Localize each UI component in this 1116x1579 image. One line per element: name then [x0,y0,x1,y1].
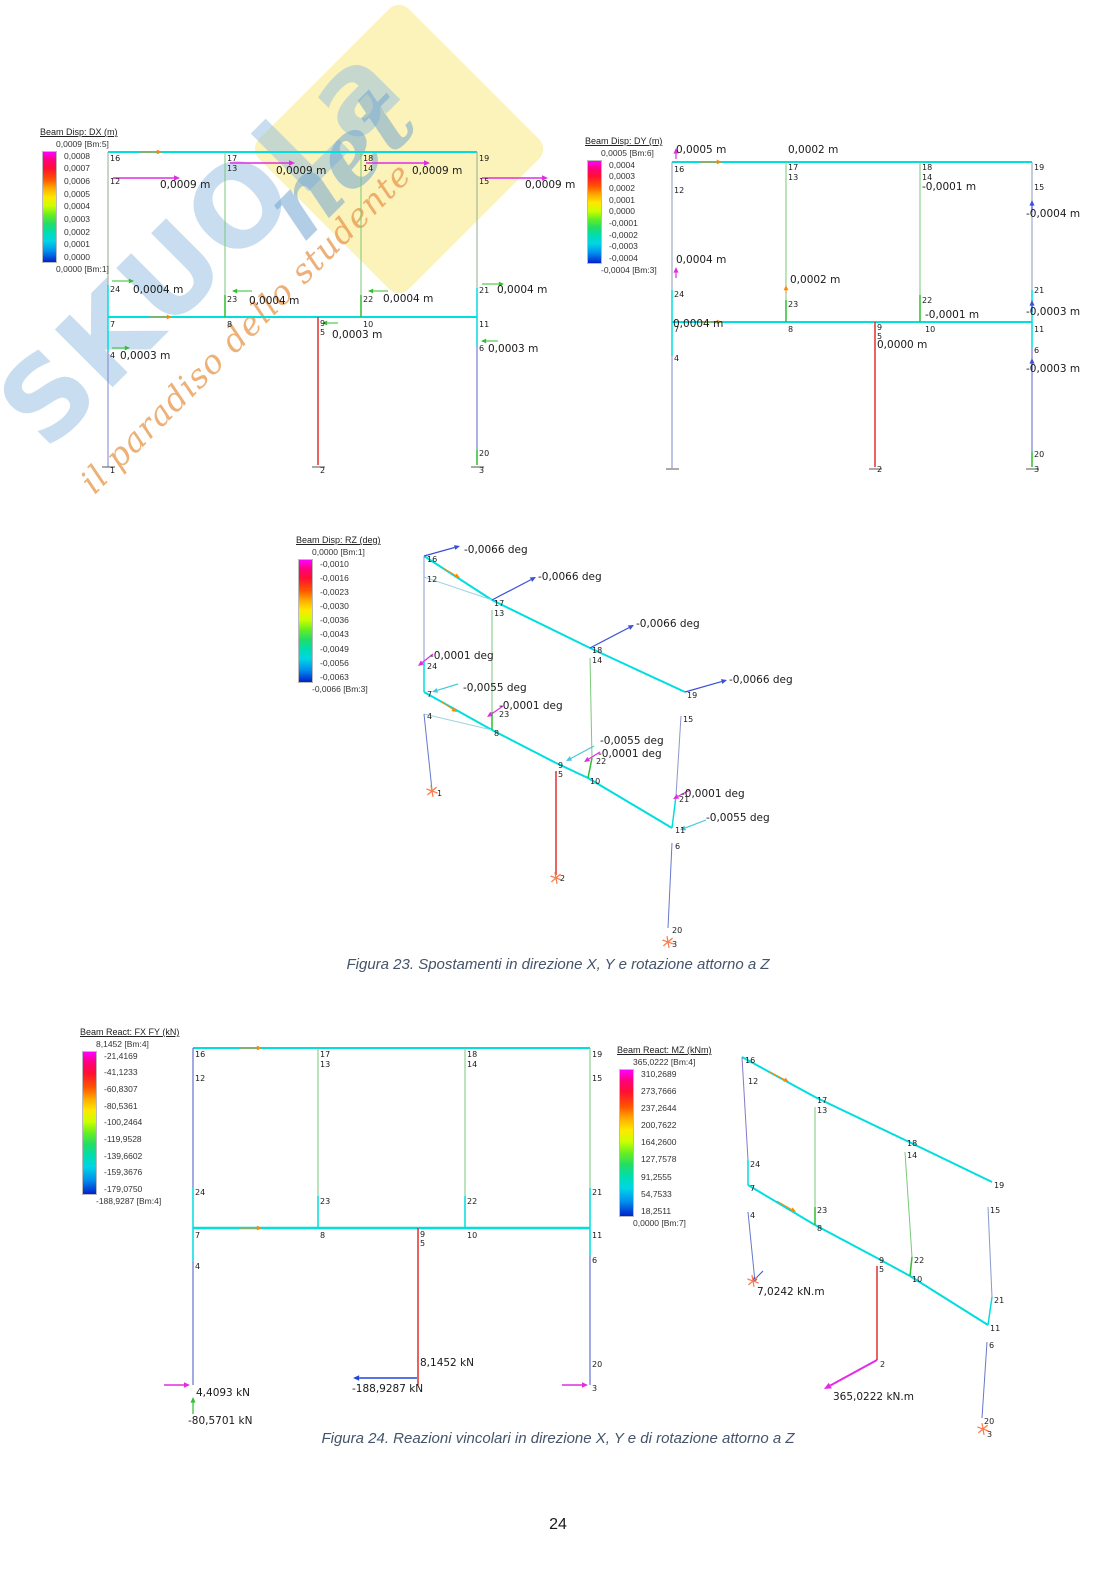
legend-value: 0,0001 [609,196,638,205]
node-label: 7 [195,1231,200,1240]
node-label: 11 [675,826,685,835]
arrow-head [582,1382,588,1387]
arrow-head [257,1226,262,1231]
node-label: 17 [494,599,504,608]
legend-value: 0,0004 [64,202,90,211]
node-label: 12 [748,1077,758,1086]
node-label: 4 [195,1262,200,1271]
legend-value: -0,0002 [609,231,638,240]
legend-min-value: 0,0000 [Bm:1] [56,265,118,274]
node-label: 13 [788,173,798,182]
node-label: 16 [427,555,437,564]
legend-value: 0,0002 [64,228,90,237]
legend-value: 0,0006 [64,177,90,186]
legend-min-value: 0,0000 [Bm:7] [633,1219,712,1228]
node-label: 8 [817,1224,822,1233]
value-label: -0,0066 deg [729,674,793,686]
legend-value: 91,2555 [641,1173,676,1182]
arrow-head [717,160,722,165]
value-label: 0,0000 m [877,339,927,351]
arrow-shaft [770,1072,784,1080]
node-label: 6 [592,1256,597,1265]
node-label: 23 [320,1197,330,1206]
node-label: 11 [990,1324,1000,1333]
node-label: 18 [592,646,602,655]
document-page: SKUOLa net il paradiso dello studente 16… [0,0,1116,1579]
node-label: 13 [494,609,504,618]
node-label: 14 [467,1060,477,1069]
node-label: 15 [683,715,693,724]
legend-value: 0,0004 [609,161,638,170]
legend-value: 0,0000 [64,253,90,262]
value-label: -0,0066 deg [538,571,602,583]
legend-value: -179,0750 [104,1185,142,1194]
diagram-react-mz: 161217131814191524742389522102111622037,… [742,1056,1004,1439]
value-label: 0,0004 m [133,284,183,296]
legend-colorbar-row: 0,00080,00070,00060,00050,00040,00030,00… [42,151,118,263]
node-label: 23 [227,295,237,304]
legend-value: 0,0005 [64,190,90,199]
node-label: 23 [817,1206,827,1215]
node-label: 16 [745,1056,755,1065]
node-label: 24 [195,1188,205,1197]
legend-rz: Beam Disp: RZ (deg)0,0000 [Bm:1]-0,0010-… [296,536,381,695]
legend-colorbar-row: 310,2689273,7666237,2644200,7622164,2600… [619,1069,712,1217]
legend-max-value: 0,0009 [Bm:5] [56,140,118,149]
legend-title: Beam Disp: DX (m) [40,128,118,137]
value-label: -0,0001 deg [681,788,745,800]
legend-value: -80,5361 [104,1102,142,1111]
arrow-shaft [571,746,594,758]
value-label: -0,0001 deg [430,650,494,662]
node-label: 17 [227,154,237,163]
frame-member [668,843,672,928]
diagram-disp-dy: 161217131814191524232221789510114622030,… [666,144,1080,474]
figure-23-caption: Figura 23. Spostamenti in direzione X, Y… [0,956,1116,973]
node-label: 15 [479,177,489,186]
node-label: 20 [1034,450,1044,459]
node-label: 17 [817,1096,827,1105]
legend-values: -0,0010-0,0016-0,0023-0,0030-0,0036-0,00… [320,559,349,683]
node-label: 16 [674,165,684,174]
legend-colorbar [619,1069,634,1217]
value-label: -0,0001 deg [499,700,563,712]
frame-member [424,692,492,730]
legend-colorbar [298,559,313,683]
value-label: 365,0222 kN.m [833,1391,914,1403]
value-label: -0,0001 deg [598,748,662,760]
legend-title: Beam Disp: DY (m) [585,137,662,146]
arrow-head [129,279,134,284]
node-label: 3 [592,1384,597,1393]
node-label: 2 [320,466,325,475]
node-label: 19 [1034,163,1044,172]
legend-value: -0,0004 [609,254,638,263]
node-label: 11 [1034,325,1044,334]
node-label: 15 [1034,183,1044,192]
arrow-head [454,545,460,550]
arrow-shaft [443,568,456,575]
node-label: 19 [687,691,697,700]
legend-colorbar [42,151,57,263]
node-label: 14 [363,164,373,173]
legend-colorbar [587,160,602,264]
frame-member [815,1225,877,1258]
arrow-head [1029,300,1034,306]
node-label: 9 [420,1230,425,1239]
node-label: 2 [560,874,565,883]
legend-value: -0,0010 [320,560,349,569]
node-label: 12 [674,186,684,195]
node-label: 6 [1034,346,1039,355]
diagrams-canvas: 1617131814191215242322217895101146122030… [0,0,1116,1579]
node-label: 23 [788,300,798,309]
node-label: 17 [788,163,798,172]
node-label: 18 [363,154,373,163]
arrow-head [257,1046,262,1051]
legend-values: 0,00040,00030,00020,00010,0000-0,0001-0,… [609,160,638,264]
legend-value: -0,0043 [320,630,349,639]
node-label: 22 [914,1256,924,1265]
frame-member [910,1257,912,1276]
value-label: -0,0004 m [1026,208,1080,220]
arrow-head [673,267,678,273]
legend-value: -0,0001 [609,219,638,228]
frame-member [742,1057,748,1160]
legend-value: 18,2511 [641,1207,676,1216]
page-number: 24 [0,1516,1116,1534]
legend-value: -0,0036 [320,616,349,625]
frame-member [905,1140,992,1182]
node-label: 5 [320,328,325,337]
frame-member [492,600,590,648]
legend-value: 0,0008 [64,152,90,161]
frame-member [590,648,685,692]
value-label: 8,1452 kN [420,1357,474,1369]
node-label: 8 [227,320,232,329]
arrow-shaft [440,701,453,709]
node-label: 10 [912,1275,922,1284]
legend-value: -0,0049 [320,645,349,654]
value-label: 0,0009 m [412,165,462,177]
value-label: 7,0242 kN.m [757,1286,825,1298]
node-label: 11 [479,320,489,329]
legend-colorbar [82,1051,97,1195]
frame-member [672,796,676,828]
arrow-shaft [437,684,458,690]
node-label: 8 [320,1231,325,1240]
frame-member [748,1212,755,1282]
value-label: 0,0004 m [497,284,547,296]
node-label: 4 [427,712,432,721]
node-label: 4 [674,354,679,363]
diagram-disp-dx: 1617131814191215242322217895101146122030… [102,150,575,475]
node-label: 11 [592,1231,602,1240]
value-label: 0,0003 m [120,350,170,362]
node-label: 7 [110,320,115,329]
legend-value: 0,0003 [609,172,638,181]
legend-min-value: -0,0066 [Bm:3] [312,685,381,694]
legend-colorbar-row: 0,00040,00030,00020,00010,0000-0,0001-0,… [587,160,662,264]
node-label: 22 [922,296,932,305]
node-label: 10 [925,325,935,334]
arrow-shaft [685,820,706,828]
frame-member [424,714,492,730]
arrow-head [167,315,172,320]
arrow-head [1029,200,1034,206]
legend-value: 310,2689 [641,1070,676,1079]
node-label: 19 [479,154,489,163]
legend-value: 0,0007 [64,164,90,173]
arrow-head [721,679,727,684]
legend-value: -119,9528 [104,1135,142,1144]
node-label: 21 [592,1188,602,1197]
legend-title: Beam React: MZ (kNm) [617,1046,712,1055]
node-label: 4 [110,351,115,360]
node-label: 24 [427,662,437,671]
node-label: 6 [479,344,484,353]
value-label: -188,9287 kN [352,1383,423,1395]
legend-value: 54,7533 [641,1190,676,1199]
node-label: 5 [558,770,563,779]
legend-value: -41,1233 [104,1068,142,1077]
legend-fxfy: Beam React: FX FY (kN)8,1452 [Bm:4]-21,4… [80,1028,179,1207]
node-label: 4 [750,1211,755,1220]
legend-values: 310,2689273,7666237,2644200,7622164,2600… [641,1069,676,1217]
value-label: 0,0009 m [276,165,326,177]
node-label: 2 [877,465,882,474]
node-label: 15 [592,1074,602,1083]
value-label: -80,5701 kN [188,1415,252,1427]
value-label: 0,0004 m [676,254,726,266]
legend-value: -100,2464 [104,1118,142,1127]
arrow-shaft [492,580,531,600]
legend-value: 0,0000 [609,207,638,216]
node-label: 9 [558,761,563,770]
legend-dy: Beam Disp: DY (m)0,0005 [Bm:6]0,00040,00… [585,137,662,276]
node-label: 14 [907,1151,917,1160]
value-label: -0,0055 deg [463,682,527,694]
value-label: -0,0003 m [1026,363,1080,375]
legend-value: 237,2644 [641,1104,676,1113]
frame-member [982,1342,987,1418]
node-label: 7 [427,690,432,699]
node-label: 3 [479,466,484,475]
node-label: 18 [922,163,932,172]
node-label: 5 [879,1265,884,1274]
arrow-head [157,150,162,155]
node-label: 21 [479,286,489,295]
node-label: 8 [494,729,499,738]
node-label: 1 [437,789,442,798]
value-label: -0,0055 deg [706,812,770,824]
node-label: 8 [788,325,793,334]
node-label: 20 [672,926,682,935]
arrow-head [184,1382,190,1387]
arrow-shaft [830,1360,877,1386]
value-label: 0,0005 m [676,144,726,156]
diagram-disp-rz: 161217131814191524742389522102111612203-… [418,544,793,949]
node-label: 18 [907,1139,917,1148]
value-label: -0,0066 deg [464,544,528,556]
legend-title: Beam React: FX FY (kN) [80,1028,179,1037]
legend-title: Beam Disp: RZ (deg) [296,536,381,545]
node-label: 12 [195,1074,205,1083]
frame-member [492,730,556,763]
node-label: 13 [817,1106,827,1115]
frame-member [748,1185,815,1225]
legend-value: -139,6602 [104,1152,142,1161]
value-label: 0,0009 m [525,179,575,191]
legend-value: 200,7622 [641,1121,676,1130]
legend-value: -0,0063 [320,673,349,682]
legend-mz: Beam React: MZ (kNm)365,0222 [Bm:4]310,2… [617,1046,712,1229]
arrow-head [353,1375,359,1381]
node-label: 9 [320,319,325,328]
legend-value: 127,7578 [641,1155,676,1164]
legend-value: 0,0003 [64,215,90,224]
legend-value: 0,0002 [609,184,638,193]
node-label: 20 [984,1417,994,1426]
node-label: 6 [989,1341,994,1350]
node-label: 15 [990,1206,1000,1215]
legend-value: 273,7666 [641,1087,676,1096]
node-label: 17 [320,1050,330,1059]
value-label: -0,0066 deg [636,618,700,630]
arrow-head [232,289,237,294]
legend-max-value: 0,0005 [Bm:6] [601,149,662,158]
legend-value: -21,4169 [104,1052,142,1061]
value-label: 0,0004 m [383,293,433,305]
value-label: 0,0004 m [249,295,299,307]
node-label: 19 [592,1050,602,1059]
node-label: 12 [427,575,437,584]
node-label: 10 [363,320,373,329]
value-label: 0,0003 m [488,343,538,355]
node-label: 13 [227,164,237,173]
frame-member [815,1097,905,1140]
value-label: 0,0009 m [160,179,210,191]
frame-member [590,658,592,758]
node-label: 24 [674,290,684,299]
arrow-head [190,1397,195,1403]
frame-member [988,1297,992,1325]
node-label: 5 [420,1239,425,1248]
legend-value: -0,0056 [320,659,349,668]
node-label: 13 [320,1060,330,1069]
node-label: 21 [1034,286,1044,295]
arrow-head [432,688,438,693]
frame-member [905,1152,912,1257]
arrow-shaft [777,1201,791,1209]
arrow-shaft [590,628,629,648]
legend-max-value: 365,0222 [Bm:4] [633,1058,712,1067]
node-label: 21 [994,1296,1004,1305]
frame-member [424,714,432,790]
node-label: 20 [479,449,489,458]
legend-min-value: -0,0004 [Bm:3] [601,266,662,275]
node-label: 22 [467,1197,477,1206]
frame-member [588,778,672,828]
value-label: 0,0004 m [673,318,723,330]
node-label: 10 [590,777,600,786]
legend-value: 164,2600 [641,1138,676,1147]
node-label: 7 [750,1184,755,1193]
value-label: 0,0002 m [788,144,838,156]
node-label: 18 [467,1050,477,1059]
node-label: 24 [110,285,120,294]
node-label: 1 [110,466,115,475]
node-label: 10 [467,1231,477,1240]
value-label: -0,0055 deg [600,735,664,747]
node-label: 14 [592,656,602,665]
node-label: 3 [1034,465,1039,474]
node-label: 20 [592,1360,602,1369]
arrow-head [784,285,789,290]
value-label: 4,4093 kN [196,1387,250,1399]
legend-value: -0,0003 [609,242,638,251]
arrow-head [368,289,373,294]
value-label: 0,0003 m [332,329,382,341]
legend-value: -0,0016 [320,574,349,583]
node-label: 24 [750,1160,760,1169]
value-label: -0,0003 m [1026,306,1080,318]
legend-values: 0,00080,00070,00060,00050,00040,00030,00… [64,151,90,263]
node-label: 2 [880,1360,885,1369]
legend-colorbar-row: -0,0010-0,0016-0,0023-0,0030-0,0036-0,00… [298,559,381,683]
frame-member [676,716,681,796]
node-label: 16 [195,1050,205,1059]
legend-max-value: 8,1452 [Bm:4] [96,1040,179,1049]
legend-value: 0,0001 [64,240,90,249]
node-label: 22 [363,295,373,304]
legend-value: -0,0030 [320,602,349,611]
node-label: 9 [877,323,882,332]
legend-value: -60,8307 [104,1085,142,1094]
frame-member [988,1207,992,1297]
node-label: 6 [675,842,680,851]
legend-min-value: -188,9287 [Bm:4] [96,1197,179,1206]
value-label: 0,0002 m [790,274,840,286]
value-label: -0,0001 m [925,309,979,321]
legend-value: -159,3676 [104,1168,142,1177]
diagram-react-fxfy: 16171318141912152423222178951011462034,4… [164,1046,602,1427]
legend-dx: Beam Disp: DX (m)0,0009 [Bm:5]0,00080,00… [40,128,118,275]
node-label: 19 [994,1181,1004,1190]
node-label: 3 [672,940,677,949]
legend-max-value: 0,0000 [Bm:1] [312,548,381,557]
legend-values: -21,4169-41,1233-60,8307-80,5361-100,246… [104,1051,142,1195]
node-label: 9 [879,1256,884,1265]
value-label: -0,0001 m [922,181,976,193]
arrow-head [481,339,486,344]
figure-24-caption: Figura 24. Reazioni vincolari in direzio… [0,1430,1116,1447]
legend-value: -0,0023 [320,588,349,597]
legend-colorbar-row: -21,4169-41,1233-60,8307-80,5361-100,246… [82,1051,179,1195]
